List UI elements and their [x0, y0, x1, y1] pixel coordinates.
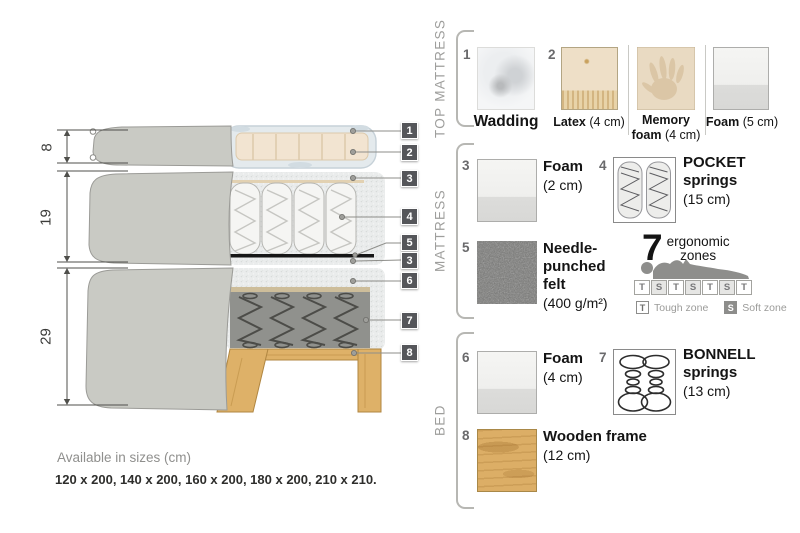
legend-num-4: 4: [599, 158, 607, 173]
memory-name-1: Memory: [642, 113, 690, 127]
legend-num-7: 7: [599, 350, 607, 365]
bed-base-fabric: [86, 268, 233, 410]
available-sizes-title: Available in sizes (cm): [57, 450, 191, 465]
memory-foam-label: Memory foam (4 cm): [624, 113, 708, 143]
latex-image: [561, 47, 618, 110]
legend-num-5: 5: [462, 240, 470, 255]
pocket-springs-label: POCKET springs (15 cm): [683, 154, 746, 208]
latex-label: Latex (4 cm): [543, 115, 635, 130]
needle-felt-label: Needle- punched felt (400 g/m²): [543, 240, 608, 312]
legend-num-1: 1: [463, 47, 471, 62]
latex-size: (4 cm): [589, 115, 624, 129]
layer-tag-2: 2: [401, 144, 418, 161]
soft-zone-label: Soft zone: [742, 302, 786, 314]
latex-name: Latex: [553, 115, 586, 129]
bonnell-springs-label: BONNELL springs (13 cm): [683, 346, 756, 400]
dimension-top-mattress: 8: [39, 135, 56, 161]
zone-boxes: T S T S T S T: [634, 280, 752, 295]
ergonomic-word-1: ergonomic: [667, 234, 730, 249]
layer-tag-8: 8: [401, 344, 418, 361]
foam-5cm-image: [713, 47, 769, 110]
layer-tag-3b: 3: [401, 252, 418, 269]
tough-zone-key: T: [636, 301, 649, 314]
needle-felt-layer: [228, 254, 374, 258]
legend-num-3: 3: [462, 158, 470, 173]
felt-name-2: punched: [543, 258, 608, 276]
bonnell-springs-image: [613, 349, 676, 415]
strap-loop: [90, 155, 96, 161]
wooden-frame-size: (12 cm): [543, 446, 647, 464]
zone-box-s: S: [651, 280, 667, 295]
bed-construction-infographic: 8 19 29 1 2 3 4 5 3 6 7 8 TOP MATTRESS 1…: [0, 0, 800, 533]
foam-5cm-size: (5 cm): [743, 115, 778, 129]
foam-4cm-size: (4 cm): [543, 368, 583, 386]
pocket-size: (15 cm): [683, 190, 746, 208]
zone-box-t: T: [736, 280, 752, 295]
available-sizes-list: 120 x 200, 140 x 200, 160 x 200, 180 x 2…: [55, 472, 377, 487]
foam-4cm-image: [477, 351, 537, 414]
wadding-image: [477, 47, 535, 110]
foam-2cm-image: [477, 159, 537, 222]
top-mattress-fabric: [93, 126, 233, 166]
foam-4cm-label: Foam (4 cm): [543, 350, 583, 386]
latex-layer: [236, 133, 368, 160]
wooden-frame-image: [477, 429, 537, 492]
dimension-bed: 29: [38, 324, 55, 350]
pocket-name-2: springs: [683, 172, 746, 190]
layer-tag-1: 1: [401, 122, 418, 139]
zone-box-s: S: [685, 280, 701, 295]
layer-tag-6: 6: [401, 272, 418, 289]
foam-2cm-label: Foam (2 cm): [543, 158, 583, 194]
foam-2cm-size: (2 cm): [543, 176, 583, 194]
needle-felt-image: [477, 241, 537, 304]
soft-zone-key: S: [724, 301, 737, 314]
memory-size: (4 cm): [665, 128, 700, 142]
zone-legend: T Tough zone S Soft zone: [636, 301, 787, 314]
bonnell-size: (13 cm): [683, 382, 756, 400]
zone-box-s: S: [719, 280, 735, 295]
section-title-mattress: MATTRESS: [430, 143, 450, 319]
memory-foam-image: [637, 47, 695, 110]
bed-base-section: [86, 268, 385, 412]
top-mattress-section: [90, 125, 376, 168]
wadding-label: Wadding: [458, 113, 554, 131]
bonnell-name-1: BONNELL: [683, 346, 756, 364]
mattress-fabric: [89, 172, 233, 265]
pocket-name-1: POCKET: [683, 154, 746, 172]
dimension-mattress: 19: [38, 205, 55, 231]
felt-name-1: Needle-: [543, 240, 608, 258]
layer-tag-3: 3: [401, 170, 418, 187]
layer-tag-5: 5: [401, 234, 418, 251]
section-title-bed: BED: [430, 332, 450, 509]
legend-num-2: 2: [548, 47, 556, 62]
foam-2cm-name: Foam: [543, 158, 583, 176]
felt-size: (400 g/m²): [543, 294, 608, 312]
legend-num-6: 6: [462, 350, 470, 365]
zone-box-t: T: [668, 280, 684, 295]
foam-5cm-name: Foam: [706, 115, 739, 129]
bonnell-springs-layer: [230, 292, 370, 348]
wooden-frame-label: Wooden frame (12 cm): [543, 428, 647, 464]
legend-num-8: 8: [462, 428, 470, 443]
foam-5cm-label: Foam (5 cm): [698, 115, 786, 130]
zone-box-t: T: [634, 280, 650, 295]
foam-4cm-name: Foam: [543, 350, 583, 368]
bonnell-name-2: springs: [683, 364, 756, 382]
felt-name-3: felt: [543, 276, 608, 294]
memory-name-2: foam: [632, 128, 662, 142]
tough-zone-label: Tough zone: [654, 302, 708, 314]
pocket-springs-image: [613, 157, 676, 223]
lying-person-icon: [634, 256, 754, 282]
layer-tag-4: 4: [401, 208, 418, 225]
section-title-top-mattress: TOP MATTRESS: [430, 30, 450, 127]
wood-leg-right: [358, 349, 381, 412]
zone-box-t: T: [702, 280, 718, 295]
layer-tag-7: 7: [401, 312, 418, 329]
wooden-frame-name: Wooden frame: [543, 428, 647, 446]
